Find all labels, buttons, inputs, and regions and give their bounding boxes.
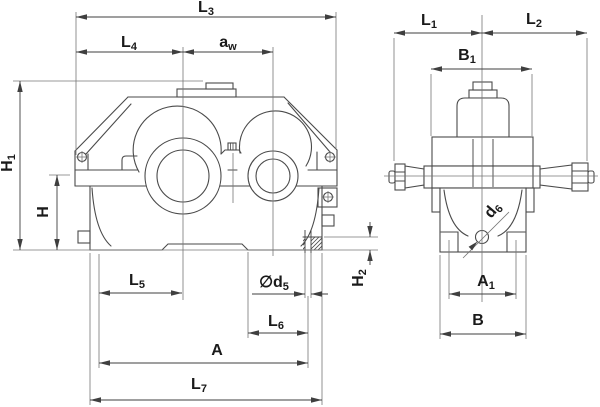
dim-label-L2: L2 [526,12,542,30]
bracket-bolt [322,191,334,203]
dim-label-d5: ∅d5 [259,275,289,293]
dim-label-aw: aw [219,35,236,53]
dim-label-H: H [36,206,54,218]
dim-label-L1: L1 [421,13,437,31]
dim-label-L5: L5 [129,273,145,291]
top-cap-dome [457,98,509,137]
dim-label-L4: L4 [121,35,137,53]
dim-label-L7: L7 [191,377,207,395]
side-view [389,82,594,258]
dim-label-L3: L3 [198,0,214,18]
left-foot-lug [78,231,90,243]
inspection-cover [177,89,236,97]
reducer-dimension-drawing: L3 L4 aw H1 H L5 ∅d5 H2 L6 A L7 L1 L2 B1… [0,0,600,407]
dim-label-H2: H2 [351,269,369,287]
side-base [432,188,534,258]
cap-knob [473,82,492,90]
dim-label-A1: A1 [477,274,495,292]
corner-bolt-right [324,151,336,163]
right-foot-tab [322,215,334,226]
dim-label-B: B [472,313,484,331]
drawing-svg [0,0,600,407]
inspection-cover-knob [206,83,233,89]
shaft-end-right [540,163,594,191]
dim-label-A: A [211,343,223,361]
dim-label-L6: L6 [268,314,284,332]
front-view [75,83,337,253]
shaft-end-left [389,164,424,190]
housing-block [432,137,533,166]
vent-bolt [228,143,236,150]
corner-bolt-left [76,151,88,163]
boss-valley [221,150,241,154]
right-bracket-plate [318,188,337,207]
dim-label-B1: B1 [458,48,476,66]
cap-step [469,90,497,98]
dim-label-H1: H1 [0,154,18,172]
